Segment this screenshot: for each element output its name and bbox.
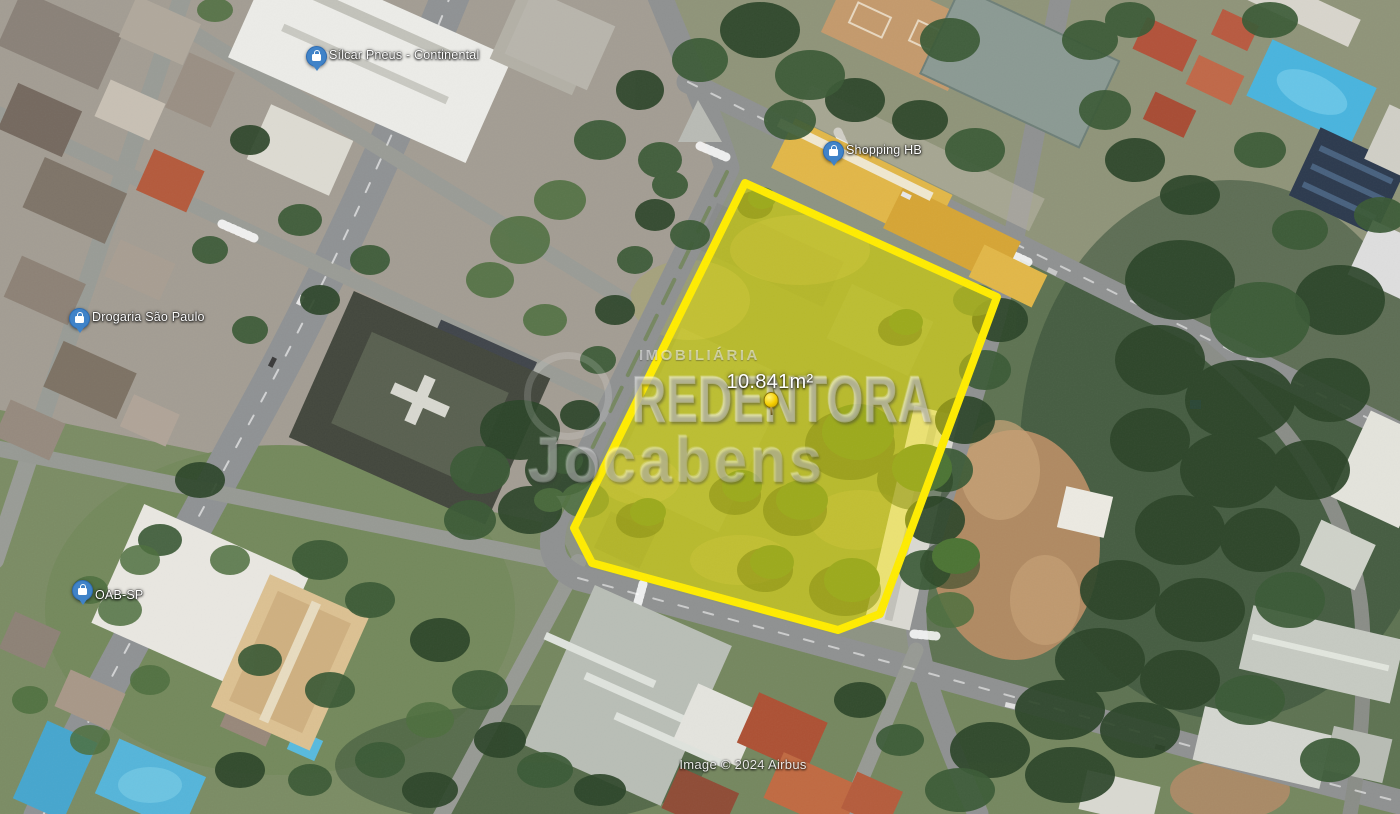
satellite-map-canvas[interactable]: IMOBILIÁRIA REDENTORA Jocabens Sílcar Pn… [0,0,1400,814]
place-pin-icon[interactable] [306,46,327,67]
shopping-bag-icon [312,54,321,61]
poi-label[interactable]: OAB-SP [95,588,143,602]
property-pushpin-icon[interactable] [762,391,780,418]
watermark-imobiliaria: IMOBILIÁRIA [639,348,760,363]
shopping-bag-icon [78,588,87,595]
poi-silcar-pneus: Sílcar Pneus - Continental [306,46,327,67]
place-pin-icon[interactable] [69,308,90,329]
imagery-attribution: Image © 2024 Airbus [679,757,806,772]
poi-drogaria-sao-paulo: Drogaria São Paulo [69,308,90,329]
poi-label[interactable]: Drogaria São Paulo [92,310,205,324]
poi-oab-sp: OAB-SP [72,580,93,601]
place-pin-icon[interactable] [823,141,844,162]
poi-label[interactable]: Shopping HB [846,143,922,157]
watermark-jocabens: Jocabens [528,428,825,492]
poi-shopping-hb: Shopping HB [823,141,844,162]
poi-label[interactable]: Sílcar Pneus - Continental [329,48,479,62]
shopping-bag-icon [75,316,84,323]
property-area-label: 10.841m² [727,371,814,394]
place-pin-icon[interactable] [72,580,93,601]
shopping-bag-icon [829,149,838,156]
